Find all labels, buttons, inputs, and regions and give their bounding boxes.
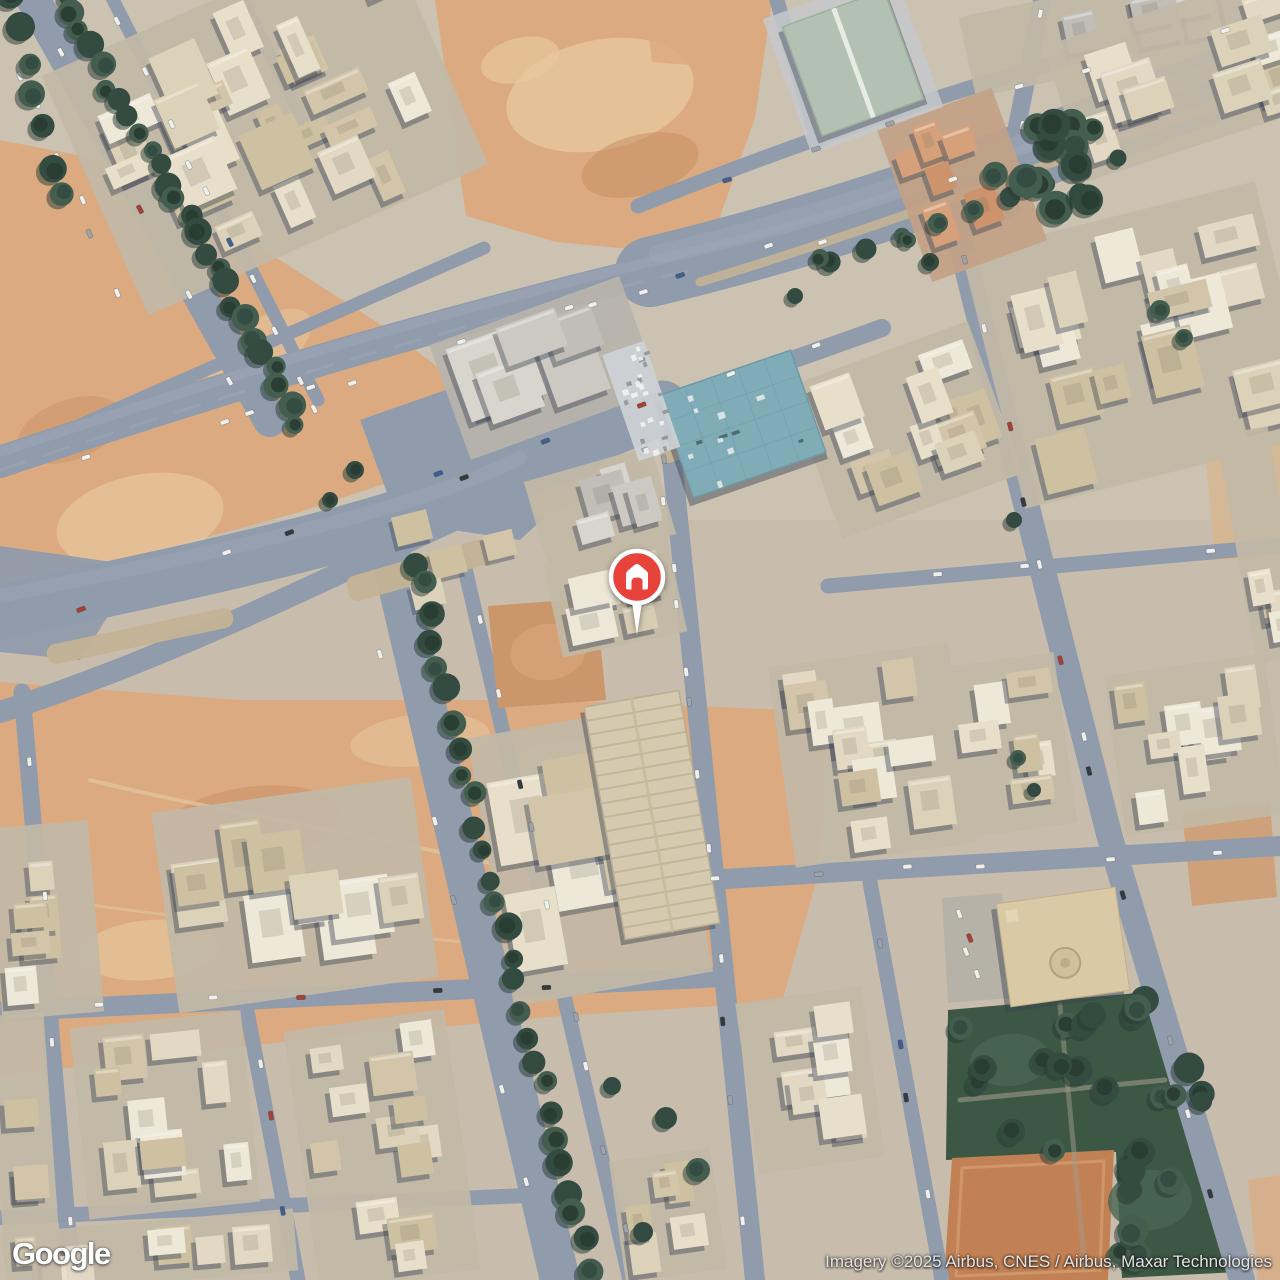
home-pin-icon xyxy=(605,543,669,643)
home-marker[interactable] xyxy=(605,543,669,643)
map-attribution: Imagery ©2025 Airbus, CNES / Airbus, Max… xyxy=(825,1252,1272,1272)
google-logo[interactable]: Google xyxy=(12,1238,110,1269)
satellite-map-viewport[interactable]: Google Imagery ©2025 Airbus, CNES / Airb… xyxy=(0,0,1280,1280)
